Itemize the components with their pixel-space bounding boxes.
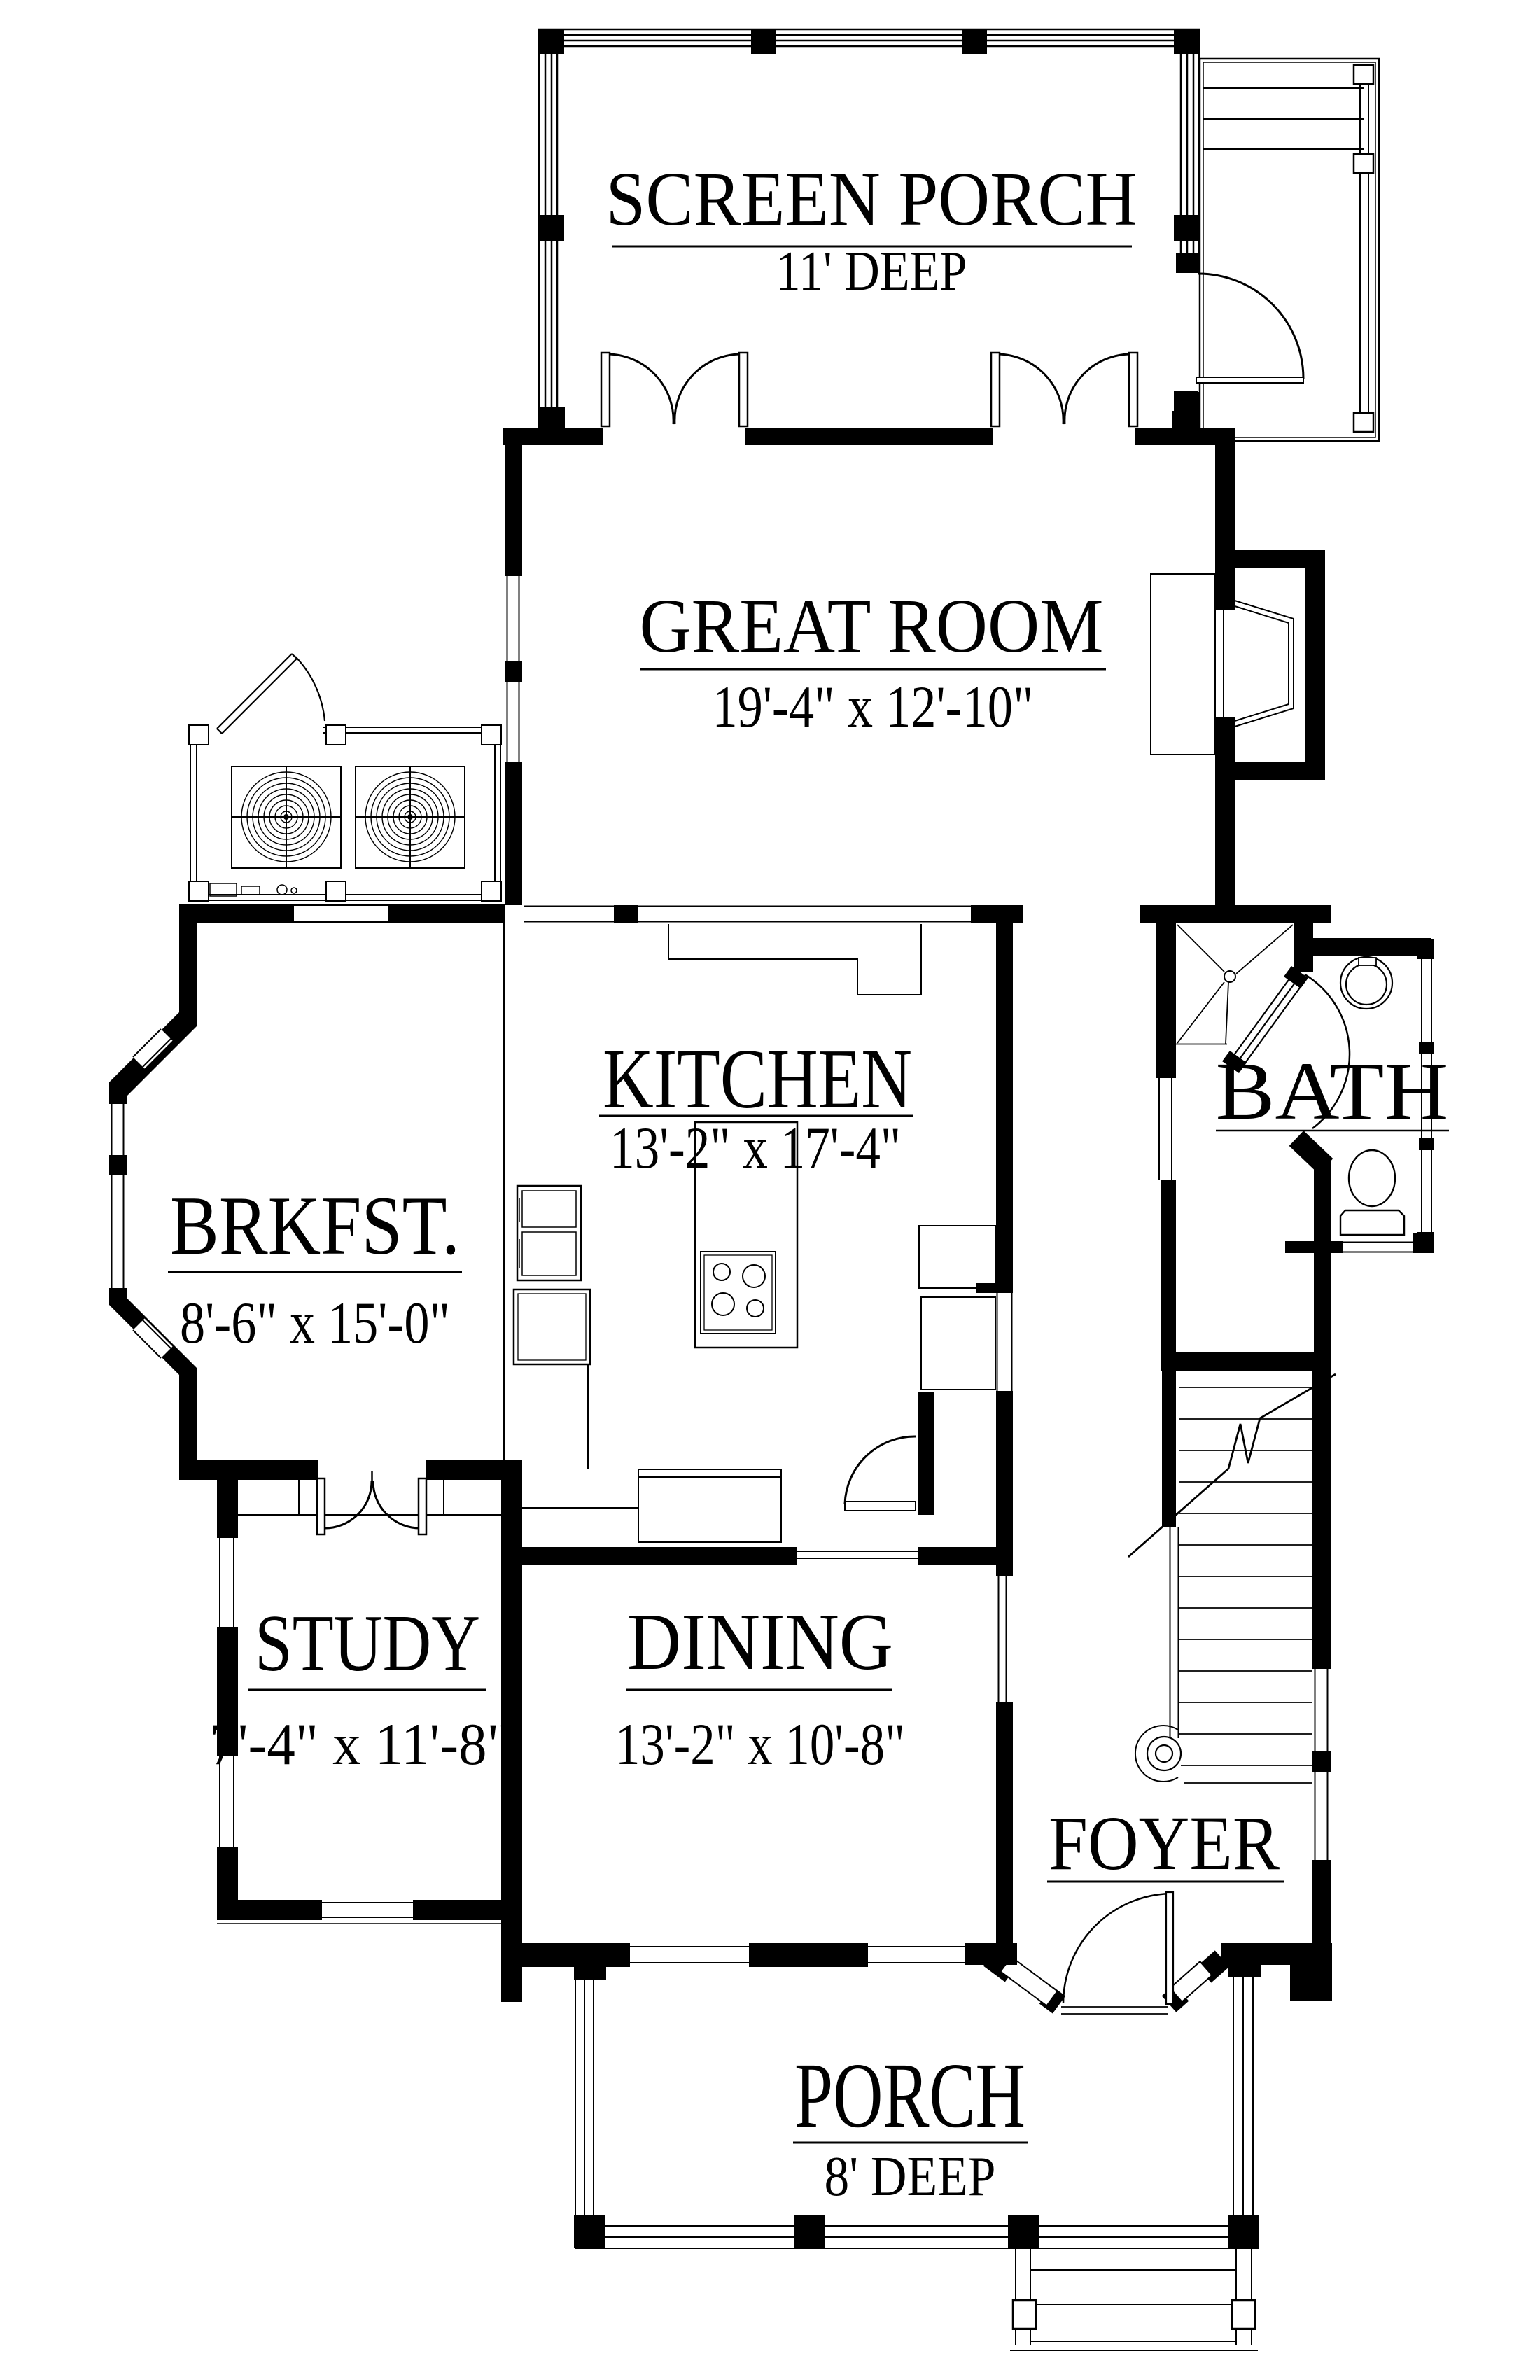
svg-text:BRKFST.: BRKFST. [170,1179,460,1272]
svg-text:STUDY: STUDY [255,1599,480,1688]
svg-text:8'-6" x 15'-0": 8'-6" x 15'-0" [180,1290,450,1356]
svg-text:BATH: BATH [1216,1045,1449,1137]
svg-text:PORCH: PORCH [794,2043,1025,2147]
svg-text:FOYER: FOYER [1049,1800,1280,1886]
svg-text:13'-2" x 17'-4": 13'-2" x 17'-4" [610,1115,901,1181]
svg-text:8' DEEP: 8' DEEP [825,2146,996,2208]
svg-text:19'-4" x 12'-10": 19'-4" x 12'-10" [713,674,1034,740]
svg-text:7'-4" x 11'-8": 7'-4" x 11'-8" [210,1711,510,1777]
svg-text:DINING: DINING [627,1597,893,1686]
svg-text:11' DEEP: 11' DEEP [776,241,967,302]
svg-text:13'-2" x 10'-8": 13'-2" x 10'-8" [615,1711,905,1777]
svg-text:GREAT ROOM: GREAT ROOM [640,583,1104,668]
svg-text:KITCHEN: KITCHEN [603,1032,912,1126]
svg-text:SCREEN PORCH: SCREEN PORCH [606,156,1137,241]
